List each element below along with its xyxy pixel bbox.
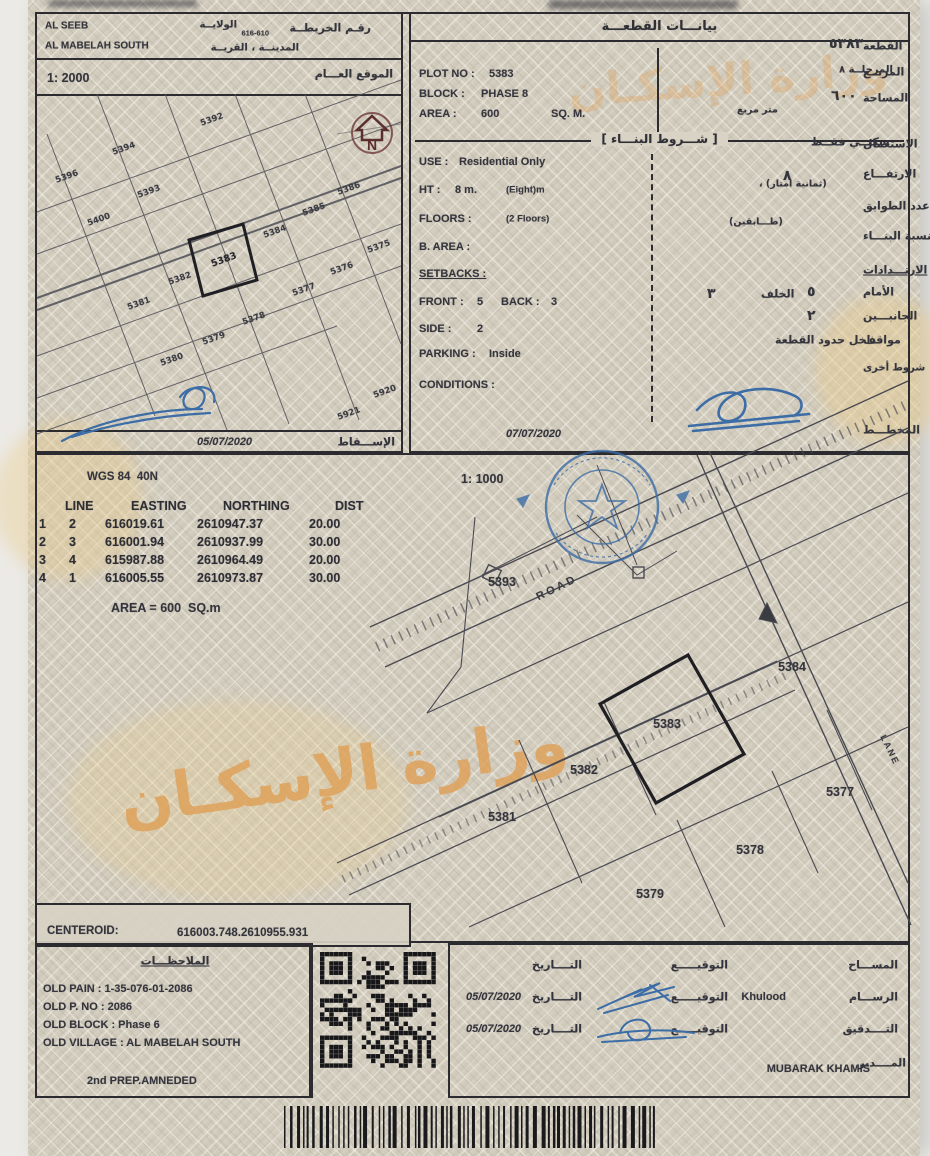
signature-field: Khulood bbox=[741, 991, 786, 1003]
plot-field-en: Inside bbox=[489, 348, 521, 360]
location-panel: AL SEEBAL MABELAH SOUTHرقـم الخريطــة616… bbox=[35, 12, 403, 453]
cut-off-text-remnant bbox=[48, 0, 198, 7]
plot-fields-arabic-layer: القطعة٥٣٨٣المربــعالمرحلــة ٨المساحة٦٠٠م… bbox=[411, 14, 908, 451]
notes-layer: الملاحظـــاتOLD PAIN : 1-35-076-01-2086O… bbox=[37, 945, 309, 1096]
plot-field-ar: الارتـــدادات bbox=[863, 264, 927, 277]
plot-field-en: 07/07/2020 bbox=[506, 428, 561, 440]
notes-box: الملاحظـــاتOLD PAIN : 1-35-076-01-2086O… bbox=[35, 943, 311, 1098]
plot-field-ar: الجانبـــين bbox=[863, 310, 917, 323]
signatures-panel: المســـاحالتوقيـــــعالتــــاريخالرســـا… bbox=[448, 943, 910, 1098]
centeroid-label: CENTEROID: bbox=[47, 925, 119, 937]
centeroid-value: 616003.748.2610955.931 bbox=[177, 927, 308, 939]
signature-field: التــــاريخ bbox=[532, 959, 582, 972]
plot-field-ar: ٥ bbox=[807, 284, 816, 300]
signature-field: التوقيـــــع bbox=[671, 959, 728, 972]
plot-field-en: 5383 bbox=[489, 68, 513, 80]
location-header-label: 616-610 bbox=[241, 29, 269, 38]
plot-field-ar: ٣ bbox=[707, 286, 716, 302]
building-conditions-text: [ شـــروط البنـــاء ] bbox=[591, 132, 727, 146]
location-header-label: الإســـقاط bbox=[337, 436, 395, 449]
plot-field-en: B. AREA : bbox=[419, 241, 470, 253]
location-header-label: الموقع العـــام bbox=[315, 68, 393, 81]
qr-code bbox=[320, 952, 436, 1068]
signature-field: المســـاح bbox=[848, 959, 898, 972]
signature-field: MUBARAK KHAMIS bbox=[767, 1063, 870, 1075]
plot-field-ar: مواقف bbox=[863, 334, 901, 347]
location-header-label: 1: 2000 bbox=[47, 71, 89, 85]
plot-field-ar: عدد الطوابق bbox=[863, 200, 930, 213]
highlighted-plot-5383-outline bbox=[600, 655, 744, 803]
plot-field-ar: ٥٣٨٣ bbox=[829, 36, 863, 52]
plot-field-ar: المرحلــة ٨ bbox=[839, 65, 893, 76]
scanned-krooki-document: وزارة الإسكـان وزارة الإسكـان AL SEEBAL … bbox=[28, 0, 920, 1156]
plot-field-en: BACK : bbox=[501, 296, 540, 308]
location-header-label: AL SEEB bbox=[45, 21, 88, 32]
highlighted-plot-5383-outline bbox=[189, 224, 257, 296]
plot-field-en: (Eight)m bbox=[506, 185, 545, 196]
plot-field-ar: داخل حدود القطعة bbox=[775, 334, 876, 347]
plot-field-en: Residential Only bbox=[459, 156, 545, 168]
plot-field-en: FRONT : bbox=[419, 296, 464, 308]
plot-field-ar: ٢ bbox=[807, 308, 816, 324]
divider bbox=[657, 48, 659, 134]
plot-field-ar: الارتفـــاع bbox=[863, 168, 916, 181]
divider bbox=[311, 943, 313, 1098]
signature-field: 05/07/2020 bbox=[466, 1023, 521, 1035]
signature-field: 05/07/2020 bbox=[466, 991, 521, 1003]
signature-field: التــــدقيق bbox=[843, 1023, 898, 1036]
note-line: OLD BLOCK : Phase 6 bbox=[43, 1019, 160, 1031]
plot-field-ar: المربــع bbox=[863, 66, 904, 79]
survey-panel: 1: 1000 WGS 84 40N LINEEASTINGNORTHINGDI… bbox=[35, 453, 910, 943]
building-conditions-header: [ شـــروط البنـــاء ] bbox=[411, 132, 908, 146]
plot-field-en: PHASE 8 bbox=[481, 88, 528, 100]
signature-scribble bbox=[52, 379, 242, 449]
plot-field-en: 2 bbox=[477, 323, 483, 335]
plot-data-panel: بيانـــات القطعـــة [ شـــروط البنـــاء … bbox=[409, 12, 910, 453]
north-arrow-icon: N bbox=[349, 110, 395, 156]
approval-signature bbox=[679, 370, 829, 442]
north-letter: N bbox=[367, 137, 377, 153]
plot-field-ar: ٦٠٠ bbox=[831, 88, 857, 104]
location-header-label: الولايــة bbox=[199, 20, 237, 31]
plot-field-ar: ٨ bbox=[783, 168, 792, 184]
plot-field-en: SIDE : bbox=[419, 323, 451, 335]
dashed-divider bbox=[651, 154, 653, 422]
plot-field-en: USE : bbox=[419, 156, 448, 168]
divider bbox=[37, 58, 401, 60]
plot-field-ar: ، (ثمانية امتار) bbox=[759, 179, 827, 190]
plot-field-en: PARKING : bbox=[419, 348, 476, 360]
note-line: OLD PAIN : 1-35-076-01-2086 bbox=[43, 983, 193, 995]
location-header-label: رقـم الخريطــة bbox=[290, 22, 371, 35]
signature-field: المــــدير bbox=[858, 1057, 906, 1070]
signature-field: التــــاريخ bbox=[532, 1023, 582, 1036]
note-line: الملاحظـــات bbox=[141, 955, 210, 968]
note-line: OLD VILLAGE : AL MABELAH SOUTH bbox=[43, 1037, 240, 1049]
plot-field-en: HT : bbox=[419, 184, 440, 196]
plot-field-en: SETBACKS : bbox=[419, 268, 486, 280]
plot-field-en: (2 Floors) bbox=[506, 214, 549, 225]
plot-field-en: AREA : bbox=[419, 108, 456, 120]
location-header-label: AL MABELAH SOUTH bbox=[45, 41, 149, 52]
note-line: 2nd PREP.AMNEDED bbox=[87, 1075, 197, 1087]
signature-field: التــــاريخ bbox=[532, 991, 582, 1004]
plot-field-ar: متر مربع bbox=[737, 105, 778, 116]
plot-field-en: 5 bbox=[477, 296, 483, 308]
plot-field-en: 3 bbox=[551, 296, 557, 308]
signature-field: الرســـام bbox=[849, 991, 898, 1004]
survey-map-sketch bbox=[37, 455, 908, 941]
plot-field-ar: المساحة bbox=[863, 92, 908, 105]
location-header-label: المدينــة ، القريــة bbox=[211, 43, 299, 54]
plot-field-en: 8 m. bbox=[455, 184, 477, 196]
plot-field-ar: الأمام bbox=[863, 286, 894, 299]
cut-off-text-remnant bbox=[548, 0, 738, 9]
note-line: OLD P. NO : 2086 bbox=[43, 1001, 132, 1013]
draftsman-signature bbox=[590, 979, 700, 1015]
plot-field-en: FLOORS : bbox=[419, 213, 472, 225]
barcode bbox=[284, 1106, 658, 1150]
plot-field-en: CONDITIONS : bbox=[419, 379, 495, 391]
plot-field-ar: الخلف bbox=[761, 288, 794, 301]
page: { "doc": { "top_left": { "scale": "1: 20… bbox=[0, 0, 930, 1156]
plot-field-en: 600 bbox=[481, 108, 499, 120]
centeroid-box: CENTEROID: 616003.748.2610955.931 bbox=[35, 903, 411, 947]
plot-field-en: PLOT NO : bbox=[419, 68, 475, 80]
plot-field-ar: (طـــابقين) bbox=[729, 217, 783, 228]
divider bbox=[411, 40, 908, 42]
plot-field-en: SQ. M. bbox=[551, 108, 585, 120]
plot-fields-english-layer: PLOT NO :5383BLOCK :PHASE 8AREA :600SQ. … bbox=[411, 14, 908, 451]
plot-data-title: بيانـــات القطعـــة bbox=[411, 19, 908, 34]
plot-field-ar: نسبة البنـــاء bbox=[863, 230, 930, 243]
plot-field-en: BLOCK : bbox=[419, 88, 465, 100]
auditor-signature bbox=[590, 1011, 700, 1047]
